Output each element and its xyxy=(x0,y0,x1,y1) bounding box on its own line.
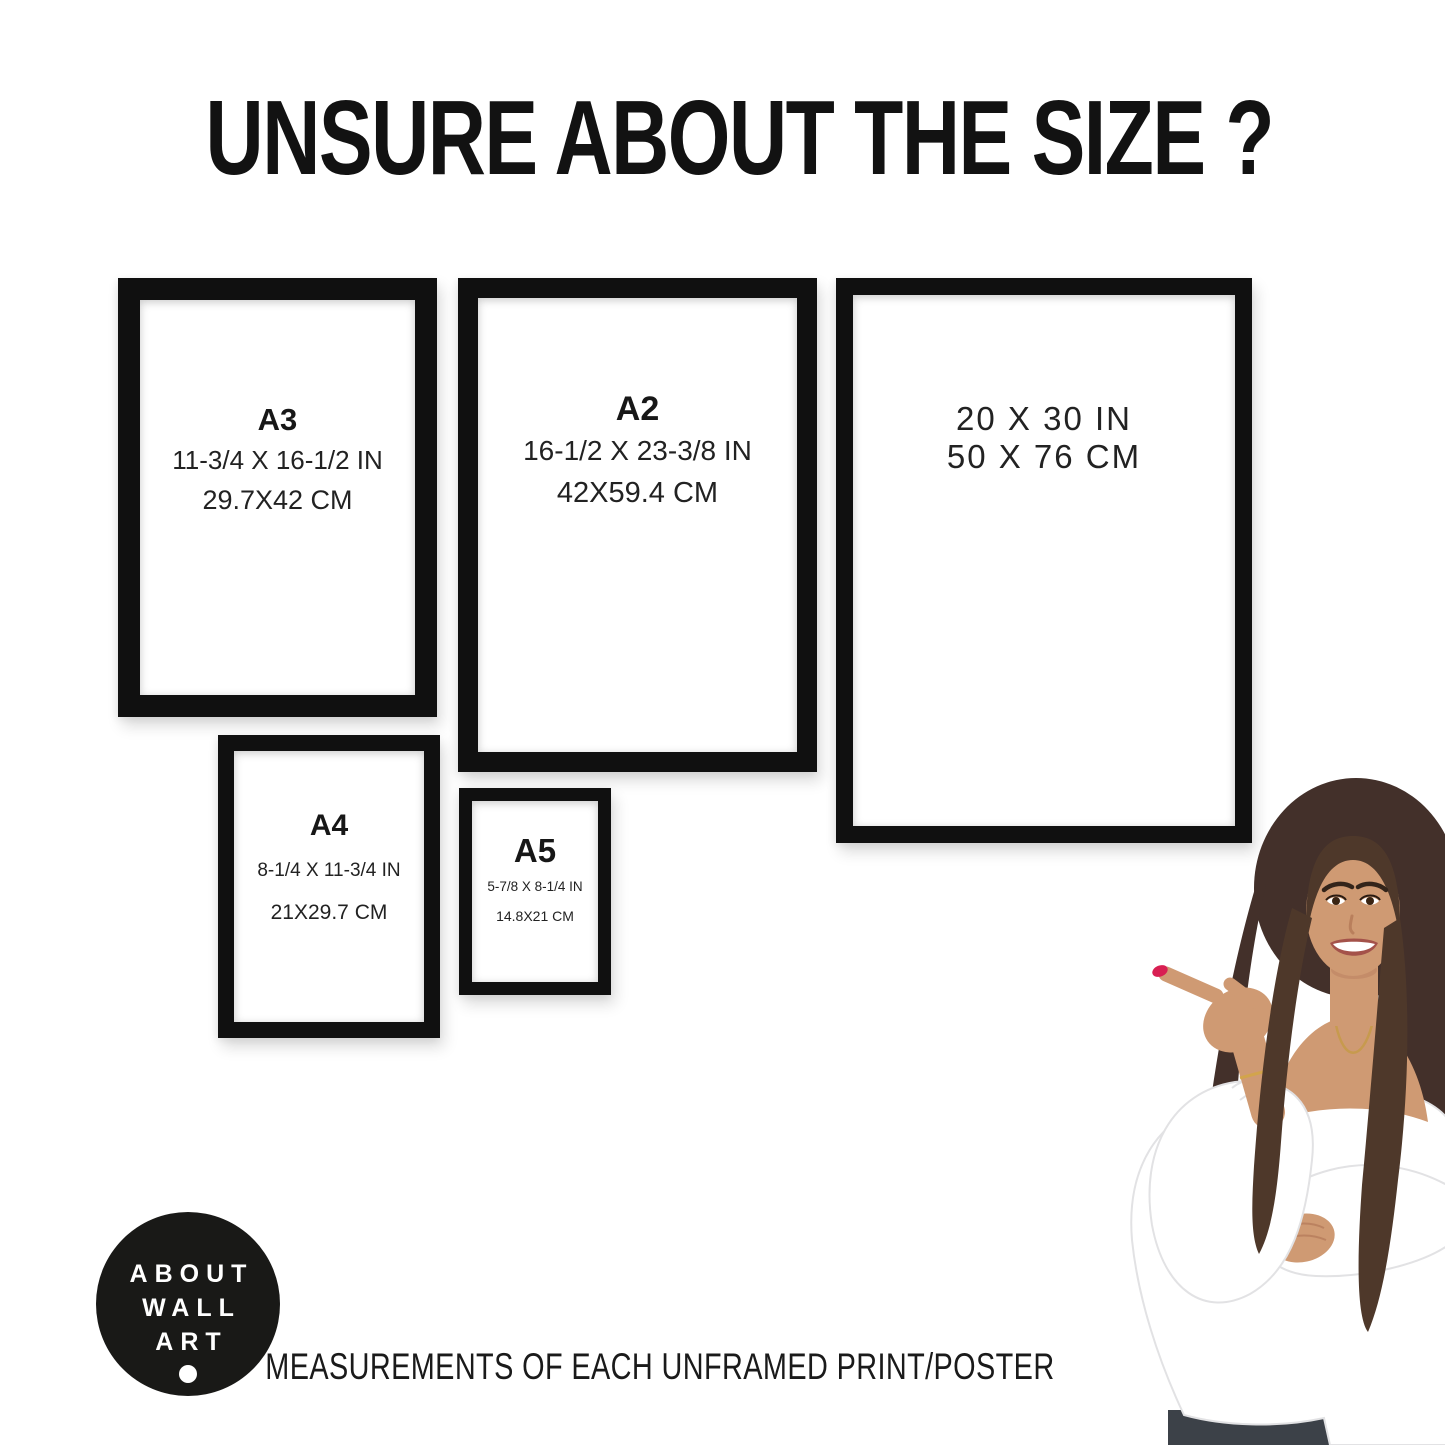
left-iris xyxy=(1332,897,1340,905)
logo-line-2: WALL xyxy=(96,1291,280,1325)
frame-a2: A2 16-1/2 X 23-3/8 IN 42X59.4 CM xyxy=(458,278,817,772)
frame-a4: A4 8-1/4 X 11-3/4 IN 21X29.7 CM xyxy=(218,735,440,1038)
size-cm-a4: 21X29.7 CM xyxy=(234,893,424,933)
logo-line-1: ABOUT xyxy=(96,1257,280,1291)
frame-a5-mat: A5 5-7/8 X 8-1/4 IN 14.8X21 CM xyxy=(472,801,598,982)
size-name-a3: A3 xyxy=(140,400,415,440)
frame-a3-mat: A3 11-3/4 X 16-1/2 IN 29.7X42 CM xyxy=(140,300,415,695)
index-finger xyxy=(1166,974,1216,996)
size-inches-a4: 8-1/4 X 11-3/4 IN xyxy=(234,849,424,893)
size-inches-a3: 11-3/4 X 16-1/2 IN xyxy=(140,440,415,480)
size-inches-a2: 16-1/2 X 23-3/8 IN xyxy=(478,430,797,472)
frame-a3: A3 11-3/4 X 16-1/2 IN 29.7X42 CM xyxy=(118,278,437,717)
frame-a4-mat: A4 8-1/4 X 11-3/4 IN 21X29.7 CM xyxy=(234,751,424,1022)
size-guide-infographic: UNSURE ABOUT THE SIZE ? A3 11-3/4 X 16-1… xyxy=(0,0,1445,1445)
size-inches-a5: 5-7/8 X 8-1/4 IN xyxy=(472,871,598,903)
woman-pointing-illustration xyxy=(1000,770,1445,1445)
footer-caption: MEASUREMENTS OF EACH UNFRAMED PRINT/POST… xyxy=(265,1346,1054,1388)
title-wrap: UNSURE ABOUT THE SIZE ? xyxy=(0,78,1445,199)
frame-20x30-mat: 20 X 30 IN 50 X 76 CM xyxy=(853,295,1235,826)
size-name-a5: A5 xyxy=(472,831,598,871)
size-cm-a5: 14.8X21 CM xyxy=(472,903,598,929)
size-cm-a3: 29.7X42 CM xyxy=(140,480,415,521)
size-inches-20x30: 20 X 30 IN xyxy=(853,400,1235,438)
page-title: UNSURE ABOUT THE SIZE ? xyxy=(206,78,1274,199)
size-name-a4: A4 xyxy=(234,803,424,849)
size-name-a2: A2 xyxy=(478,388,797,430)
frame-20x30: 20 X 30 IN 50 X 76 CM xyxy=(836,278,1252,843)
size-cm-20x30: 50 X 76 CM xyxy=(853,438,1235,476)
size-cm-a2: 42X59.4 CM xyxy=(478,472,797,514)
right-iris xyxy=(1366,897,1374,905)
frame-a5: A5 5-7/8 X 8-1/4 IN 14.8X21 CM xyxy=(459,788,611,995)
frame-a2-mat: A2 16-1/2 X 23-3/8 IN 42X59.4 CM xyxy=(478,298,797,752)
